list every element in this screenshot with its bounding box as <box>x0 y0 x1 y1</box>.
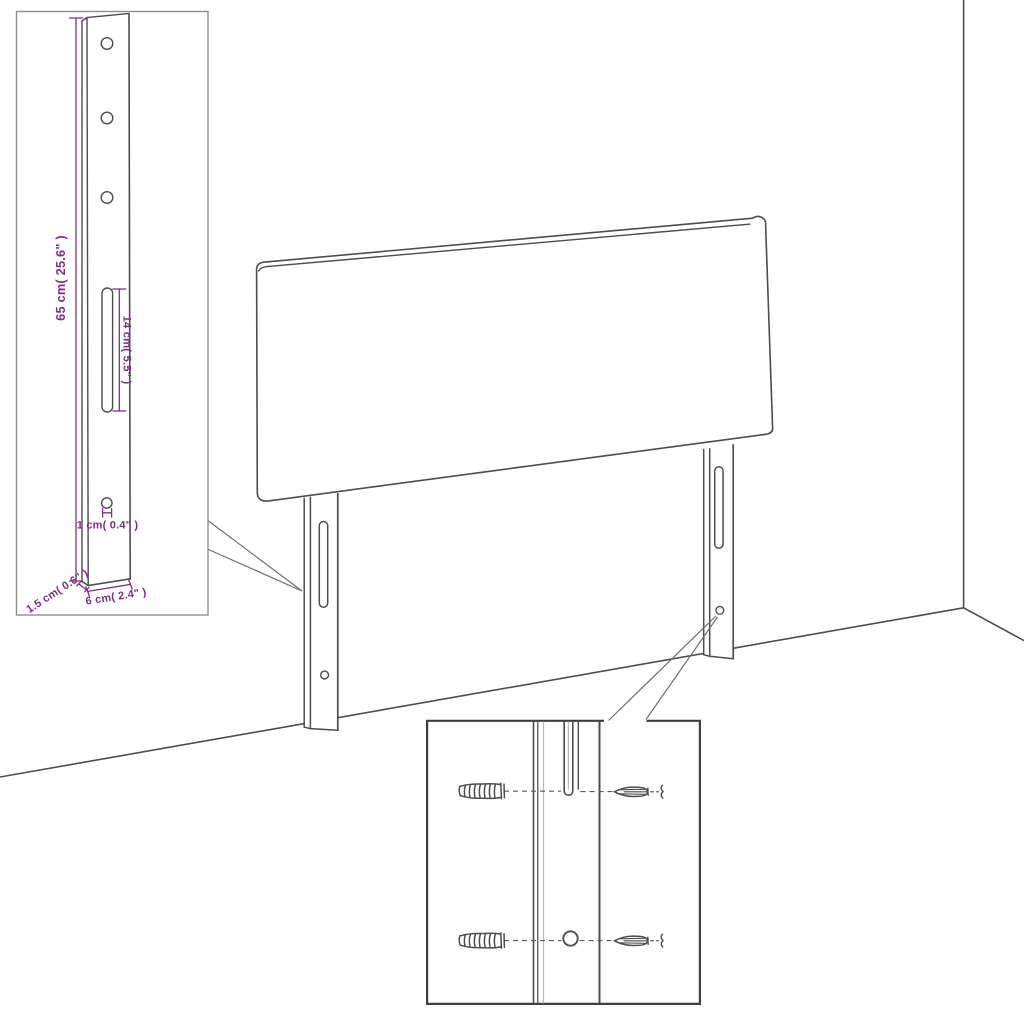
right-leg-slot <box>715 467 723 549</box>
bracket-slot <box>102 288 113 412</box>
bracket-hole-1 <box>101 38 113 50</box>
bracket-hole-2 <box>101 112 113 124</box>
right-leg-hole <box>716 606 724 614</box>
headboard-panel <box>257 216 773 501</box>
hole-offset-dimension-label: 1 cm( 0.4" ) <box>77 520 139 532</box>
right-leg <box>704 445 734 659</box>
slot-length-dimension-label: 14 cm( 5.5" ) <box>121 316 133 385</box>
panel-outline <box>257 216 773 501</box>
hardware-detail-inset <box>427 721 700 1004</box>
leg-detail-inset: 65 cm( 25.6" ) 14 cm( 5.5" ) 1 cm( 0.4" … <box>17 12 209 616</box>
headboard-assembly-diagram: 65 cm( 25.6" ) 14 cm( 5.5" ) 1 cm( 0.4" … <box>0 0 1024 1024</box>
floor-line-right <box>964 608 1024 641</box>
bracket-hole-bottom <box>102 498 112 508</box>
height-dimension-label: 65 cm( 25.6" ) <box>53 235 68 321</box>
left-leg <box>304 494 338 731</box>
left-leg-hole <box>321 671 329 679</box>
callout-line <box>646 617 718 720</box>
bracket-hole-3 <box>101 192 113 204</box>
hardware-callout-lines <box>609 616 718 721</box>
callout-line <box>609 616 717 721</box>
leg-hole-closeup <box>563 931 577 945</box>
leg-callout-lines <box>209 521 303 591</box>
diagram-page: 65 cm( 25.6" ) 14 cm( 5.5" ) 1 cm( 0.4" … <box>0 0 1024 1024</box>
left-leg-slot <box>319 522 327 608</box>
